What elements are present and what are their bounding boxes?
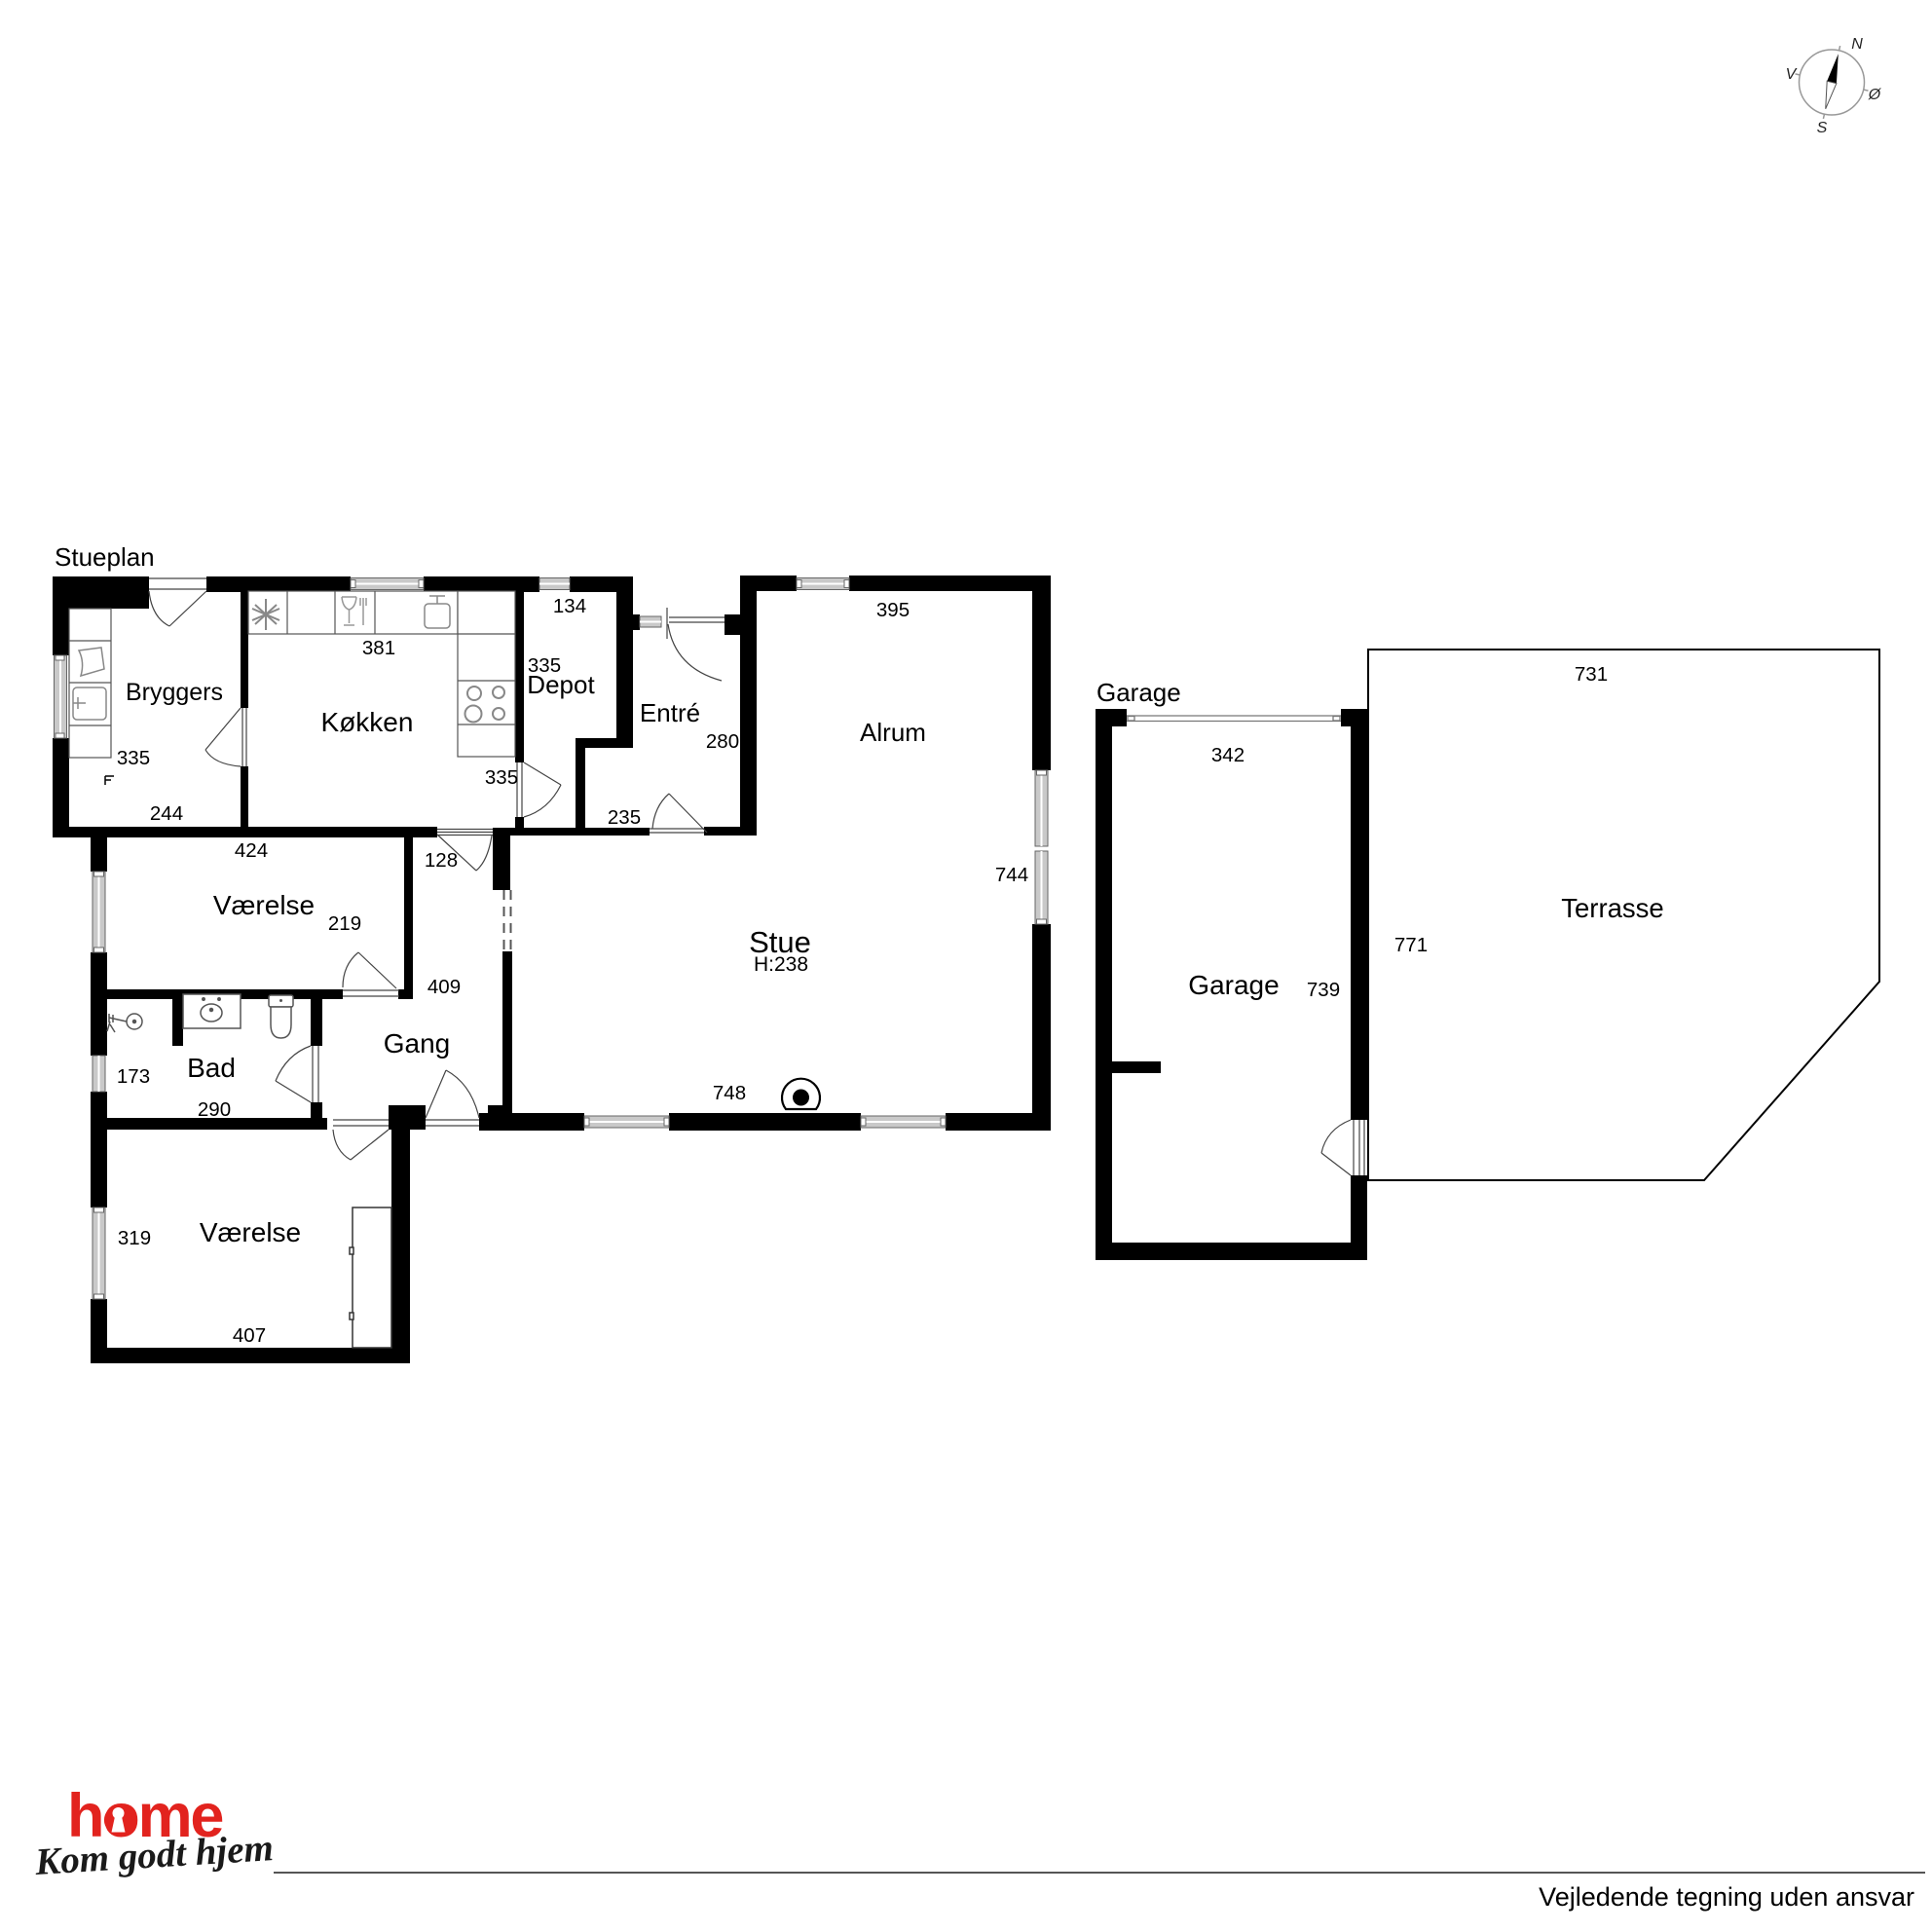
svg-text:Stueplan: Stueplan [55,542,155,572]
svg-text:219: 219 [328,912,361,935]
svg-text:771: 771 [1394,934,1428,956]
svg-text:S: S [1817,120,1828,136]
svg-text:424: 424 [235,839,268,862]
svg-text:739: 739 [1307,979,1340,1001]
svg-text:Alrum: Alrum [860,718,926,747]
svg-text:335: 335 [528,654,561,677]
svg-text:409: 409 [427,976,461,998]
svg-text:173: 173 [117,1065,150,1088]
svg-text:744: 744 [995,864,1028,886]
svg-text:N: N [1851,36,1863,53]
svg-text:381: 381 [362,637,395,659]
svg-text:H:238: H:238 [754,953,808,976]
svg-text:Vejledende tegning uden ansvar: Vejledende tegning uden ansvar [1539,1882,1914,1912]
svg-text:395: 395 [876,599,910,621]
svg-text:Bryggers: Bryggers [126,679,223,706]
svg-text:731: 731 [1575,663,1608,686]
svg-text:Terrasse: Terrasse [1561,893,1663,923]
svg-text:235: 235 [608,806,641,829]
svg-text:V: V [1786,66,1798,83]
svg-text:748: 748 [713,1082,746,1104]
svg-text:Værelse: Værelse [200,1217,301,1247]
svg-text:407: 407 [233,1324,266,1347]
svg-text:Værelse: Værelse [213,890,315,920]
svg-text:280: 280 [706,730,739,753]
svg-text:319: 319 [118,1227,151,1249]
svg-text:128: 128 [425,849,458,872]
svg-text:335: 335 [485,766,518,789]
svg-text:342: 342 [1211,744,1245,766]
svg-text:335: 335 [117,747,150,769]
svg-text:Garage: Garage [1096,678,1181,707]
svg-text:Bad: Bad [187,1053,236,1083]
svg-text:244: 244 [150,802,183,825]
svg-text:Gang: Gang [384,1028,451,1059]
svg-text:Køkken: Køkken [321,707,414,737]
svg-text:134: 134 [553,595,586,617]
svg-text:290: 290 [198,1098,231,1121]
svg-text:Garage: Garage [1188,970,1279,1000]
svg-text:Ø: Ø [1868,87,1882,103]
svg-text:Entré: Entré [640,698,700,727]
